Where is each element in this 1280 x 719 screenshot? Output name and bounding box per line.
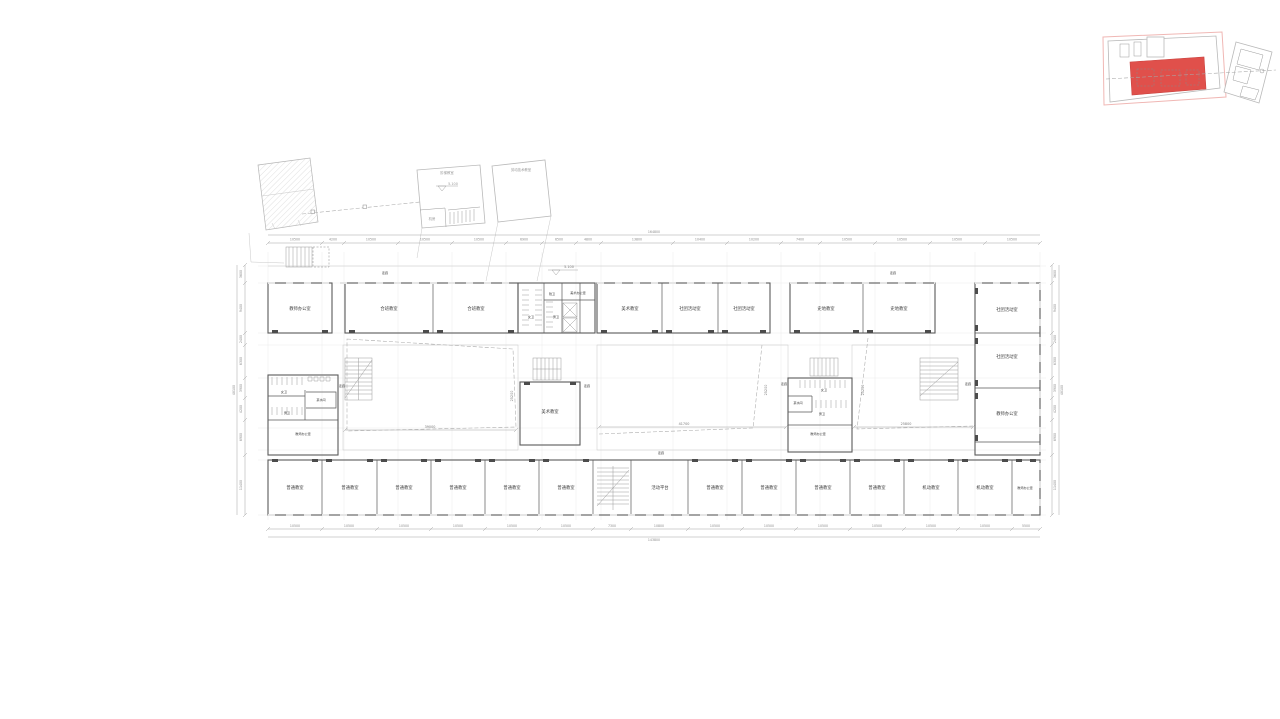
dim: 3900 xyxy=(1053,384,1057,392)
courtyard-dim: 25200 xyxy=(861,385,865,396)
courtyard-dim: 39000 xyxy=(425,425,436,429)
room-label: 普通教室 xyxy=(286,484,304,491)
dim: 10500 xyxy=(980,524,990,528)
dim: 10200 xyxy=(749,238,759,242)
courtyard-dim: 25800 xyxy=(901,422,912,426)
room-label: 茶水间 xyxy=(793,400,802,405)
dim: 10500 xyxy=(897,238,907,242)
dim: 11400 xyxy=(1053,480,1057,490)
room-label: 社团活动室 xyxy=(996,306,1018,313)
dim: 4200 xyxy=(1053,405,1057,413)
room-label: 普通教室 xyxy=(760,484,778,491)
dim: 10500 xyxy=(420,238,430,242)
dim: 10400 xyxy=(695,238,705,242)
axis-node xyxy=(363,205,367,209)
adjacent-roof-hatched xyxy=(258,158,318,230)
dim: 6900 xyxy=(239,433,243,441)
dim: 10500 xyxy=(952,238,962,242)
room-label: 茶水间 xyxy=(316,397,325,402)
dim: 2400 xyxy=(1053,335,1057,343)
key-plan-highlighted-building xyxy=(1130,57,1206,95)
room-label: 教师办公室 xyxy=(1017,485,1032,490)
dim: 10500 xyxy=(926,524,936,528)
room-label: 合班教室 xyxy=(467,305,485,312)
room-label: 美术教室 xyxy=(621,305,639,312)
dim: 10500 xyxy=(1007,238,1017,242)
corridor-label: 走廊 xyxy=(965,381,971,386)
site-key-plan xyxy=(1103,32,1276,105)
context-elevation-value: 5.100 xyxy=(448,182,458,186)
dim: 13800 xyxy=(632,238,642,242)
dim: 6900 xyxy=(1053,433,1057,441)
context-stair xyxy=(286,247,312,267)
axis-node xyxy=(311,210,315,214)
site-context: 阶梯教室 5.100 机房 劳动技术教室 xyxy=(249,158,551,281)
room-label: 史地教室 xyxy=(890,305,908,312)
dim-total-left: 48100 xyxy=(232,385,236,395)
dim: 10500 xyxy=(399,524,409,528)
dim: 10500 xyxy=(561,524,571,528)
dim: 4200 xyxy=(239,405,243,413)
room-label: 普通教室 xyxy=(503,484,521,491)
dim: 9400 xyxy=(239,304,243,312)
corridor-label: 走廊 xyxy=(382,270,388,275)
dim: 2400 xyxy=(239,335,243,343)
dim: 10500 xyxy=(818,524,828,528)
courtyard-dim: 25200 xyxy=(764,385,768,396)
room-label: 史地教室 xyxy=(817,305,835,312)
dim: 7300 xyxy=(608,524,616,528)
dim: 3900 xyxy=(239,384,243,392)
dim: 10500 xyxy=(290,238,300,242)
dim: 6500 xyxy=(555,238,563,242)
room-label: 普通教室 xyxy=(449,484,467,491)
corridor-label: 走廊 xyxy=(890,270,896,275)
dim: 10500 xyxy=(474,238,484,242)
room-label: 社团活动室 xyxy=(733,305,755,312)
room-label: 男卫 xyxy=(819,411,825,416)
room-label: 美术教室 xyxy=(541,408,559,415)
architectural-floor-plan-sheet: 阶梯教室 5.100 机房 劳动技术教室 10500 4200 10500 10… xyxy=(0,0,1280,719)
room-label: 男卫 xyxy=(553,314,559,319)
floor-plan-drawing: 阶梯教室 5.100 机房 劳动技术教室 10500 4200 10500 10… xyxy=(0,0,1280,719)
context-building-1-label: 阶梯教室 xyxy=(440,170,454,175)
dim: 3600 xyxy=(239,270,243,278)
room-label: 普通教室 xyxy=(868,484,886,491)
corridor-label: 走廊 xyxy=(658,450,664,455)
room-label: 活动平台 xyxy=(651,484,668,491)
courtyard-left xyxy=(343,345,518,450)
room-label: 普通教室 xyxy=(557,484,575,491)
dim: 10500 xyxy=(764,524,774,528)
room-label: 教师办公室 xyxy=(295,431,310,436)
room-label: 女卫 xyxy=(821,387,827,392)
corridor-label: 走廊 xyxy=(584,383,590,388)
room-label: 美术办公室 xyxy=(570,290,585,295)
corridor-label: 走廊 xyxy=(339,383,345,388)
dim: 9400 xyxy=(1053,304,1057,312)
dim: 4800 xyxy=(584,238,592,242)
room-label: 女卫 xyxy=(281,389,287,394)
dim: 10500 xyxy=(507,524,517,528)
room-label: 教师办公室 xyxy=(996,410,1018,417)
room-label: 教师办公室 xyxy=(810,431,825,436)
dim: 11400 xyxy=(239,480,243,490)
room-label: 男卫 xyxy=(284,410,290,415)
room-label: 社团活动室 xyxy=(996,353,1018,360)
dim: 10500 xyxy=(290,524,300,528)
courtyard-middle xyxy=(597,345,788,450)
dim: 4200 xyxy=(329,238,337,242)
building-walls xyxy=(268,266,1040,515)
room-label: 机动教室 xyxy=(922,484,940,491)
room-label: 合班教室 xyxy=(380,305,398,312)
dim: 6300 xyxy=(1053,357,1057,365)
room-label: 社团活动室 xyxy=(679,305,701,312)
elevation-value: 5.100 xyxy=(564,265,574,269)
dim: 10500 xyxy=(344,524,354,528)
courtyard-right xyxy=(852,345,975,450)
dim: 10800 xyxy=(654,524,664,528)
courtyard-dim: 25200 xyxy=(510,391,514,402)
rooms-heban xyxy=(345,283,518,333)
room-label: 女卫 xyxy=(528,314,534,319)
dim-total-top: 164800 xyxy=(648,230,660,234)
dim: 6300 xyxy=(239,357,243,365)
dim-total-right: 48100 xyxy=(1060,385,1064,395)
dim: 10500 xyxy=(366,238,376,242)
room-label: 普通教室 xyxy=(395,484,413,491)
room-label: 教师办公室 xyxy=(289,305,311,312)
corridor-label: 走廊 xyxy=(781,381,787,386)
rooms-top-right xyxy=(790,283,935,333)
room-label: 普通教室 xyxy=(706,484,724,491)
dim: 10500 xyxy=(710,524,720,528)
context-room-label: 机房 xyxy=(429,216,436,221)
room-label: 机动教室 xyxy=(976,484,994,491)
dim-total-bottom: 143800 xyxy=(648,538,660,542)
dim: 10500 xyxy=(453,524,463,528)
dim: 3600 xyxy=(1053,270,1057,278)
dim: 5500 xyxy=(1022,524,1030,528)
courtyard-dim: 41700 xyxy=(679,422,690,426)
dim: 6900 xyxy=(520,238,528,242)
dim: 10500 xyxy=(842,238,852,242)
dim: 7400 xyxy=(796,238,804,242)
room-label: 残卫 xyxy=(549,291,555,296)
room-label: 普通教室 xyxy=(341,484,359,491)
core-left xyxy=(268,375,338,455)
room-label: 普通教室 xyxy=(814,484,832,491)
context-building-2-label: 劳动技术教室 xyxy=(511,167,532,172)
dim: 10500 xyxy=(872,524,882,528)
